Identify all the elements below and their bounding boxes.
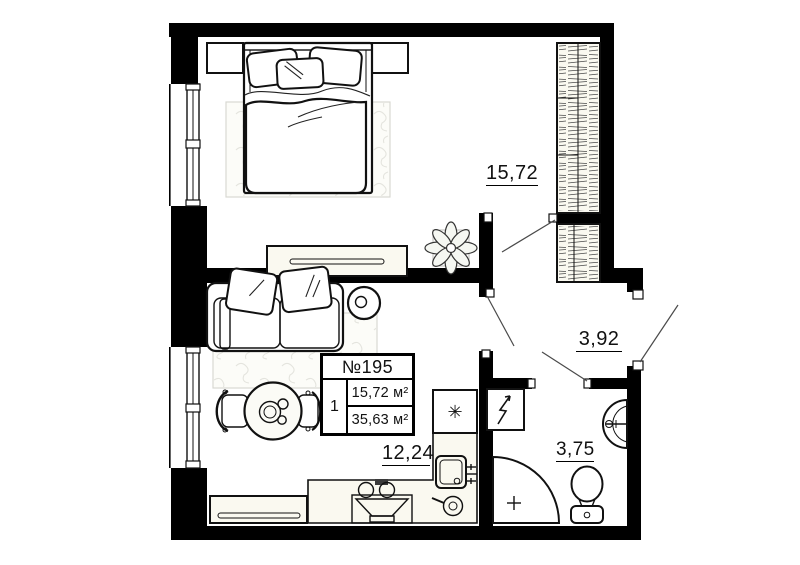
kitchen-cabinet <box>210 496 307 523</box>
floor-plan-drawing: ✳ <box>0 0 800 565</box>
corner-shower <box>493 457 559 523</box>
living-door-swing <box>487 296 514 346</box>
area-label-hallway: 3,92 <box>576 329 622 352</box>
bed-pillow-center <box>276 58 323 89</box>
area-label-kitchen-living: 12,24 <box>382 443 430 466</box>
area-label-bathroom: 3,75 <box>556 440 594 462</box>
sofa-pillow-right <box>279 266 333 313</box>
wall-bottom <box>171 526 641 540</box>
side-table <box>348 287 380 319</box>
sofa-pillow-left <box>225 268 278 316</box>
wall-right-lower <box>627 366 641 540</box>
living-window <box>186 347 200 468</box>
total-area: 35,63 м² <box>348 407 412 433</box>
wall-bedroom-east <box>479 213 493 297</box>
blanket <box>246 99 366 193</box>
wall-right <box>600 23 614 269</box>
unit-number: №195 <box>323 356 412 380</box>
bed <box>244 43 372 193</box>
bathroom-door-swing <box>542 352 587 381</box>
wall-left-upper-pier <box>171 23 198 84</box>
bedroom-window <box>186 84 200 206</box>
unit-spec-table: №195 1 15,72 м² 35,63 м² <box>320 353 415 436</box>
floor-plan: ✳ <box>0 0 800 565</box>
wall-bathroom-north-right <box>589 378 627 389</box>
nightstand-left <box>207 43 243 73</box>
plus-icon <box>507 496 521 510</box>
dining-chair-left <box>217 390 248 432</box>
area-label-bedroom: 15,72 <box>486 163 538 186</box>
wardrobe-upper <box>557 43 600 213</box>
nightstand-right <box>370 43 408 73</box>
dining-table <box>217 383 321 440</box>
wardrobe-lower <box>557 224 600 282</box>
toilet <box>571 467 603 524</box>
wall-bathroom-west <box>479 351 493 540</box>
faucet-icon <box>466 464 477 484</box>
plant <box>425 222 477 274</box>
wash-basin <box>603 400 627 448</box>
wall-top <box>169 23 614 37</box>
wall-bathroom-north-left <box>491 378 532 389</box>
bedroom-door-swing <box>502 220 555 252</box>
entrance-door-swing <box>640 305 678 362</box>
living-area: 15,72 м² <box>348 380 412 407</box>
snowflake-icon: ✳ <box>447 402 462 422</box>
water-heater <box>487 389 524 430</box>
wall-face-line-upper <box>169 84 171 206</box>
fridge: ✳ <box>433 390 477 433</box>
wall-entry-step <box>600 268 643 283</box>
rooms-count: 1 <box>323 380 348 433</box>
wall-face-line-lower <box>169 347 171 468</box>
